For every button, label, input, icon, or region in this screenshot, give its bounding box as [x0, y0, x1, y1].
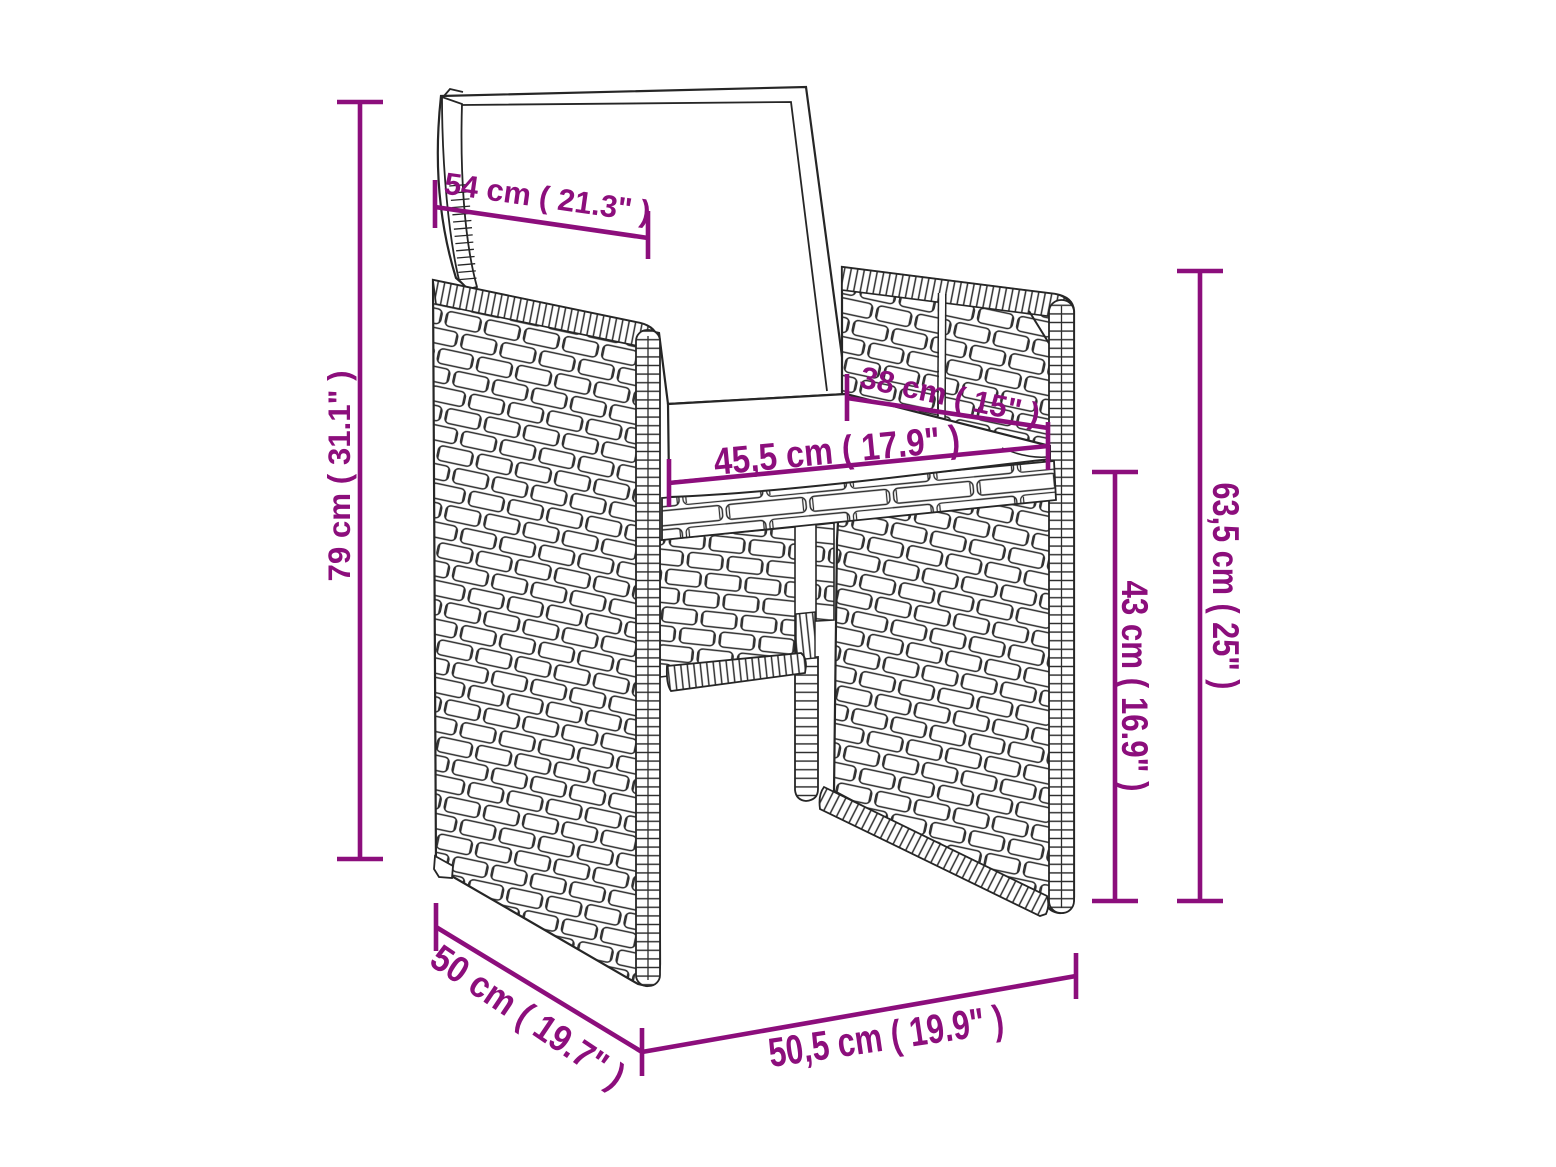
svg-text:63,5 cm ( 25" ): 63,5 cm ( 25" ) [1205, 483, 1246, 690]
svg-text:43 cm ( 16.9" ): 43 cm ( 16.9" ) [1114, 581, 1155, 792]
svg-text:79 cm ( 31.1" ): 79 cm ( 31.1" ) [321, 371, 357, 582]
